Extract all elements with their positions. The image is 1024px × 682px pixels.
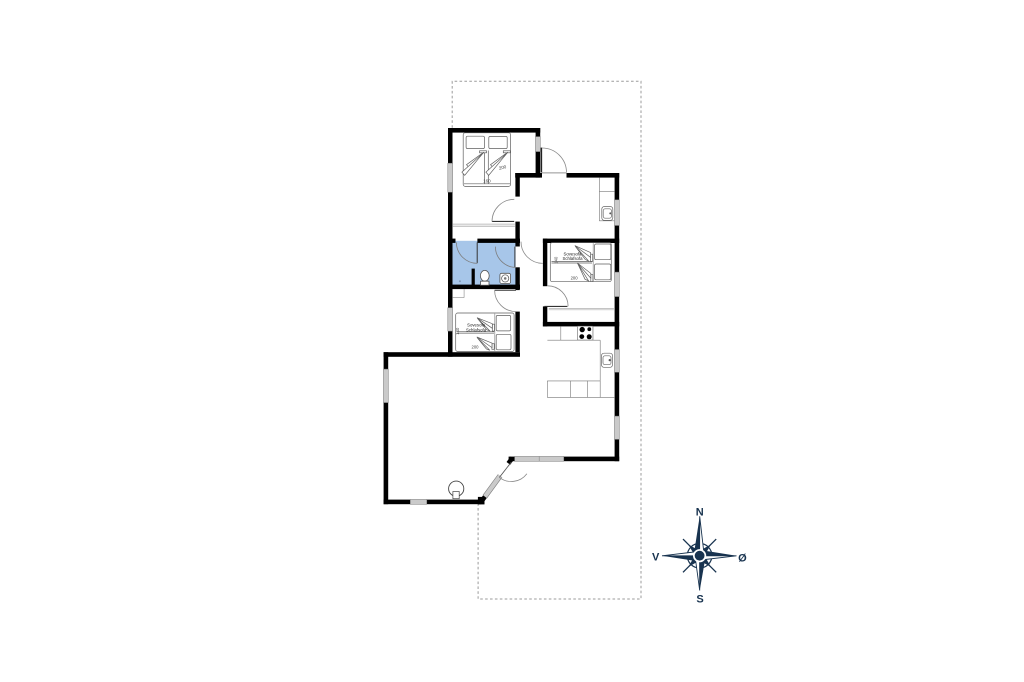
svg-text:Ø: Ø — [738, 552, 747, 564]
svg-text:200: 200 — [571, 275, 579, 280]
svg-text:V: V — [652, 552, 660, 564]
svg-text:140: 140 — [455, 327, 460, 335]
svg-text:140: 140 — [554, 256, 559, 264]
svg-text:Schlafsofa: Schlafsofa — [562, 256, 583, 261]
svg-text:200: 200 — [472, 344, 480, 349]
svg-text:S: S — [696, 594, 703, 606]
svg-text:160: 160 — [483, 179, 491, 184]
svg-text:N: N — [696, 506, 704, 518]
svg-text:Schlafsofa: Schlafsofa — [466, 328, 487, 333]
